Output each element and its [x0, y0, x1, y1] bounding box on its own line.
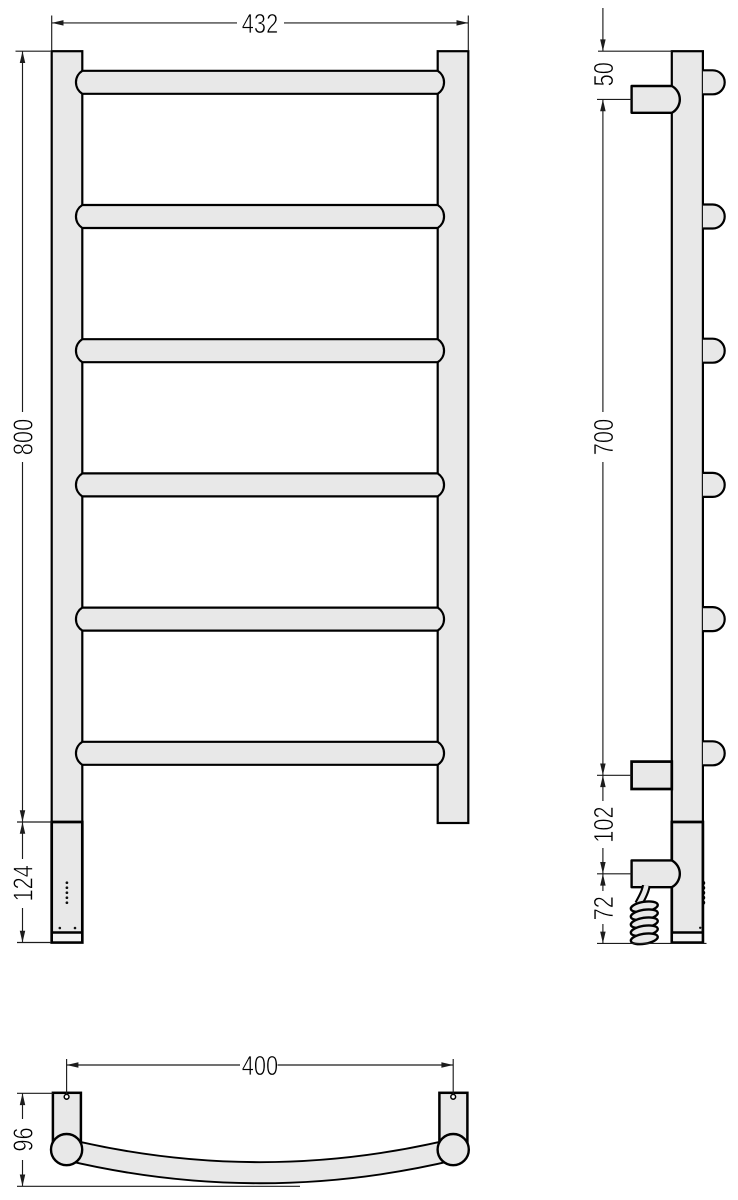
svg-text:50: 50: [588, 62, 619, 86]
svg-text:400: 400: [242, 1051, 278, 1082]
svg-text:96: 96: [8, 1127, 39, 1151]
svg-text:102: 102: [588, 806, 619, 842]
svg-text:800: 800: [8, 419, 39, 455]
svg-text:124: 124: [8, 865, 39, 901]
svg-text:432: 432: [242, 8, 278, 39]
svg-text:700: 700: [588, 419, 619, 455]
svg-text:72: 72: [588, 896, 619, 920]
